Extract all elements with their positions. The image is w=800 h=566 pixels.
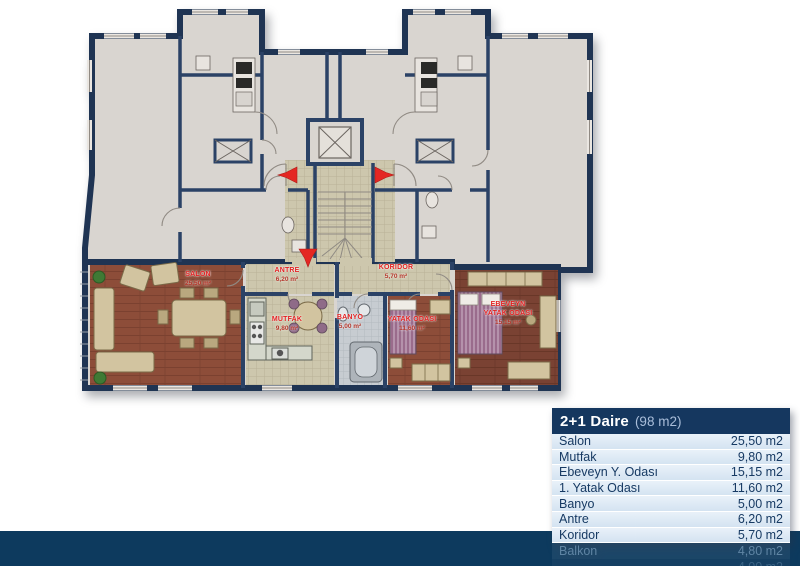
row-value: 4,00 m2 <box>738 560 783 566</box>
row-value: 11,60 m2 <box>732 481 783 495</box>
row-label: 1. Yatak Odası <box>559 481 641 495</box>
row-value: 15,15 m2 <box>731 465 783 479</box>
apartment-total-area: (98 m2) <box>635 414 682 429</box>
row-value: 5,00 m2 <box>738 497 783 511</box>
row-value: 4,80 m2 <box>738 544 783 558</box>
table-row: Salon 25,50 m2 <box>552 434 790 450</box>
row-label: Ebeveyn Y. Odası <box>559 465 658 479</box>
table-row: Koridor 5,70 m2 <box>552 528 790 544</box>
row-value: 5,70 m2 <box>738 528 783 542</box>
apartment-type-title: 2+1 Daire <box>560 413 629 430</box>
table-row: Mutfak 9,80 m2 <box>552 450 790 466</box>
row-label: Balkon <box>559 544 597 558</box>
row-label: Banyo <box>559 497 594 511</box>
table-row: 1. Yatak Odası 11,60 m2 <box>552 481 790 497</box>
row-label: Koridor <box>559 528 599 542</box>
row-value: 9,80 m2 <box>738 450 783 464</box>
table-row: Banyo 5,00 m2 <box>552 496 790 512</box>
table-row: Ebeveyn Y. Odası 15,15 m2 <box>552 465 790 481</box>
floor-plan <box>0 0 800 430</box>
area-table-header: 2+1 Daire (98 m2) <box>552 408 790 434</box>
row-label: Salon <box>559 434 591 448</box>
table-row-faint: Balkon 4,80 m2 <box>552 543 790 559</box>
row-value: 25,50 m2 <box>731 434 783 448</box>
area-table: 2+1 Daire (98 m2) Salon 25,50 m2 Mutfak … <box>552 408 790 566</box>
table-row: Antre 6,20 m2 <box>552 512 790 528</box>
row-value: 6,20 m2 <box>738 512 783 526</box>
screenshot: SALON 25,50 m² ANTRE 6,20 m² KORIDOR 5,7… <box>0 0 800 566</box>
row-label: Mutfak <box>559 450 597 464</box>
row-label: Antre <box>559 512 589 526</box>
table-row-faint: 4,00 m2 <box>552 559 790 566</box>
